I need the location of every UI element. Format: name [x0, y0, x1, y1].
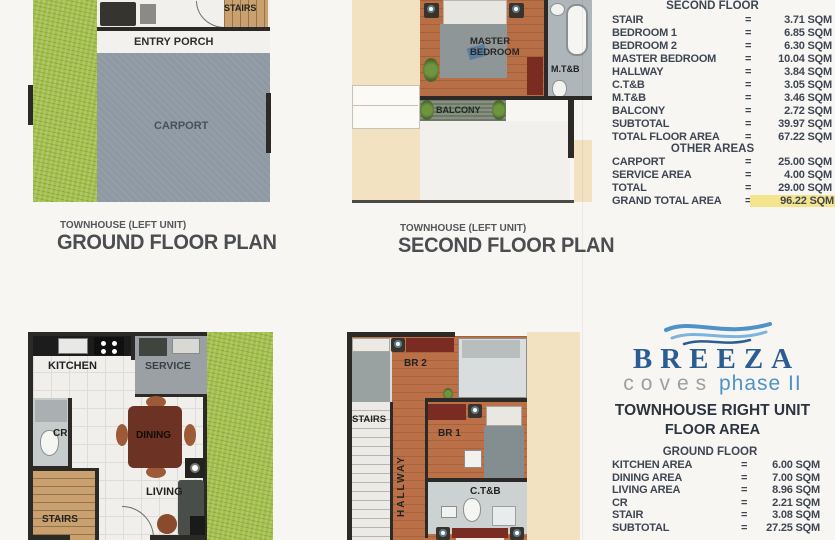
bed-pillows [486, 406, 522, 426]
stairs-label: STAIRS [352, 414, 386, 425]
table-row: SERVICE AREA=4.00 SQM [610, 169, 833, 182]
table-heading: OTHER AREAS [610, 143, 815, 155]
wave-logo-icon [662, 318, 774, 346]
wall-segment [266, 93, 271, 153]
row-value: 6.00 SQM [746, 459, 820, 471]
sink-icon [441, 506, 457, 518]
wall-segment [390, 402, 393, 540]
dining-label: DINING [136, 430, 171, 441]
plan1-caption-title: GROUND FLOOR PLAN [57, 230, 277, 255]
row-name: HALLWAY [612, 66, 663, 78]
service-label: SERVICE [145, 360, 191, 372]
roof-panel-divider [352, 105, 418, 106]
lamp-icon [436, 527, 450, 540]
row-value: 6.30 SQM [750, 40, 832, 52]
wall-segment [95, 470, 99, 540]
hallway-label: HALLWAY [396, 422, 412, 517]
stairs-area [33, 470, 95, 540]
table-row: MASTER BEDROOM=10.04 SQM [610, 53, 833, 66]
row-name: STAIR [612, 14, 643, 26]
table-row: KITCHEN AREA=6.00 SQM [610, 459, 822, 472]
table-row: GRAND TOTAL AREA=96.22 SQM [610, 195, 833, 208]
table-heading: GROUND FLOOR [610, 446, 810, 458]
stove-burners [101, 341, 106, 346]
right-unit-subtitle: FLOOR AREA [610, 422, 815, 438]
wall-segment [135, 394, 207, 397]
row-name: LIVING AREA [612, 484, 680, 496]
round-table [157, 514, 177, 534]
table-row: DINING AREA=7.00 SQM [610, 472, 822, 485]
row-value: 7.00 SQM [746, 472, 820, 484]
row-name: CR [612, 497, 628, 509]
entry-porch-label: ENTRY PORCH [134, 36, 213, 48]
table-row: BEDROOM 2=6.30 SQM [610, 40, 833, 53]
table-row: C.T&B=3.05 SQM [610, 79, 833, 92]
ctb-label: C.T&B [470, 486, 501, 497]
wall-segment [425, 398, 527, 402]
side-table-icon [140, 4, 156, 24]
master-bedroom-label: MASTER BEDROOM [470, 36, 550, 58]
wall-segment [347, 332, 455, 337]
grand-total-value: 96.22 SQM [750, 195, 835, 207]
row-value: 3.71 SQM [750, 14, 832, 26]
row-name: BEDROOM 1 [612, 27, 677, 39]
table-row: LIVING AREA=8.96 SQM [610, 484, 822, 497]
row-name: TOTAL FLOOR AREA [612, 131, 720, 143]
row-value: 27.25 SQM [746, 522, 820, 534]
shower-icon [492, 506, 516, 526]
row-name: BALCONY [612, 105, 665, 117]
kitchen-label: KITCHEN [48, 360, 97, 372]
row-value: 39.97 SQM [750, 118, 832, 130]
sink-icon [550, 3, 565, 16]
row-value: 8.96 SQM [746, 484, 820, 496]
wall-segment [150, 535, 207, 540]
br1-label: BR 1 [438, 428, 461, 439]
lamp-icon [509, 3, 524, 18]
right-unit-area-table: KITCHEN AREA=6.00 SQM DINING AREA=7.00 S… [610, 459, 822, 540]
row-value: 25.00 SQM [750, 156, 832, 168]
row-name: C.T&B [612, 79, 645, 91]
second-floor-area-table: SECOND FLOOR STAIR=3.71 SQM BEDROOM 1=6.… [610, 0, 833, 212]
table-row: SUBTOTAL=27.25 SQM [610, 522, 822, 535]
wall-segment [33, 468, 99, 471]
row-value: 67.22 SQM [750, 131, 832, 143]
speaker-icon [185, 458, 205, 478]
bed-pillows [443, 0, 507, 26]
brand-sub-gray: coves [623, 372, 713, 395]
row-name: KITCHEN AREA [612, 459, 692, 471]
mtb-label: M.T&B [551, 64, 580, 74]
table-row: TOTAL=29.00 SQM [610, 182, 833, 195]
balcony-label: BALCONY [436, 105, 481, 115]
wall-segment [28, 85, 33, 125]
row-value: 2.72 SQM [750, 105, 832, 117]
roof-edge [574, 140, 592, 202]
wall-segment [28, 535, 70, 540]
washer-icon [139, 338, 167, 356]
row-name: CARPORT [612, 156, 665, 168]
lamp-icon [510, 527, 524, 540]
row-name: STAIR [612, 509, 643, 521]
row-name: DINING AREA [612, 472, 682, 484]
shower-icon [35, 400, 67, 422]
scan-seam [582, 0, 583, 540]
br2-label: BR 2 [404, 358, 427, 369]
row-name: BEDROOM 2 [612, 40, 677, 52]
brand-sub-blue: phase II [719, 372, 802, 395]
dresser [527, 57, 543, 95]
table-row: BEDROOM 1=6.85 SQM [610, 27, 833, 40]
table-row: SUBTOTAL=39.97 SQM [610, 118, 833, 131]
bed [484, 426, 524, 478]
toilet-icon [463, 498, 481, 522]
stove-icon [94, 337, 124, 355]
row-value: 29.00 SQM [750, 182, 832, 194]
row-value: 3.46 SQM [750, 92, 832, 104]
bathtub-icon [566, 4, 588, 56]
dresser [428, 404, 466, 420]
sofa [100, 2, 136, 26]
sink-icon [58, 338, 88, 354]
stairs-label: STAIRS [42, 514, 78, 525]
dining-chair [116, 424, 128, 446]
grass-strip [33, 0, 97, 202]
plant-icon [492, 100, 506, 120]
bed-pillows [352, 338, 390, 352]
row-value: 6.85 SQM [750, 27, 832, 39]
row-name: M.T&B [612, 92, 646, 104]
side-table-icon [464, 450, 482, 468]
row-value: 3.05 SQM [750, 79, 832, 91]
table-row: STAIR=3.71 SQM [610, 14, 833, 27]
row-value: 3.08 SQM [746, 509, 820, 521]
row-value: 4.00 SQM [750, 169, 832, 181]
plant-icon [423, 58, 439, 82]
row-name: GRAND TOTAL AREA [612, 195, 721, 207]
wall-segment [68, 398, 72, 468]
right-unit-title: TOWNHOUSE RIGHT UNIT [610, 402, 815, 420]
dining-chair [184, 424, 196, 446]
cabinet [462, 340, 520, 358]
row-name: SUBTOTAL [612, 522, 669, 534]
brand-subtitle: coves phase II [610, 372, 815, 396]
carport-label: CARPORT [154, 120, 208, 132]
living-label: LIVING [146, 486, 183, 498]
row-name: MASTER BEDROOM [612, 53, 716, 65]
row-value: 3.84 SQM [750, 66, 832, 78]
roof-deck-area [527, 332, 580, 540]
wall-segment [352, 200, 574, 203]
dresser [406, 338, 454, 352]
row-value: 10.04 SQM [750, 53, 832, 65]
table-row: HALLWAY=3.84 SQM [610, 66, 833, 79]
lamp-icon [468, 404, 482, 418]
table-heading: SECOND FLOOR [610, 0, 815, 12]
scanned-floorplan-sheet: STAIRS ENTRY PORCH CARPORT TOWNHOUSE (LE… [0, 0, 835, 540]
washer-icon [172, 338, 200, 354]
table-row: BALCONY=2.72 SQM [610, 105, 833, 118]
grass-strip [207, 332, 273, 540]
row-name: SUBTOTAL [612, 118, 669, 130]
speaker-cone [190, 463, 200, 473]
row-name: TOTAL [612, 182, 647, 194]
table-row: STAIR=3.08 SQM [610, 509, 822, 522]
table-row: CR=2.21 SQM [610, 497, 822, 510]
dresser [452, 528, 508, 538]
row-name: SERVICE AREA [612, 169, 692, 181]
roof-panel [352, 85, 420, 129]
cr-label: CR [53, 428, 67, 439]
bed [352, 352, 390, 402]
lamp-icon [391, 338, 405, 352]
table-row: CARPORT=25.00 SQM [610, 156, 833, 169]
plant-icon [420, 100, 434, 120]
stairs-label: STAIRS [224, 3, 256, 13]
open-floor-area [420, 121, 570, 202]
table-row: M.T&B=3.46 SQM [610, 92, 833, 105]
lamp-icon [424, 3, 439, 18]
row-value: 2.21 SQM [746, 497, 820, 509]
